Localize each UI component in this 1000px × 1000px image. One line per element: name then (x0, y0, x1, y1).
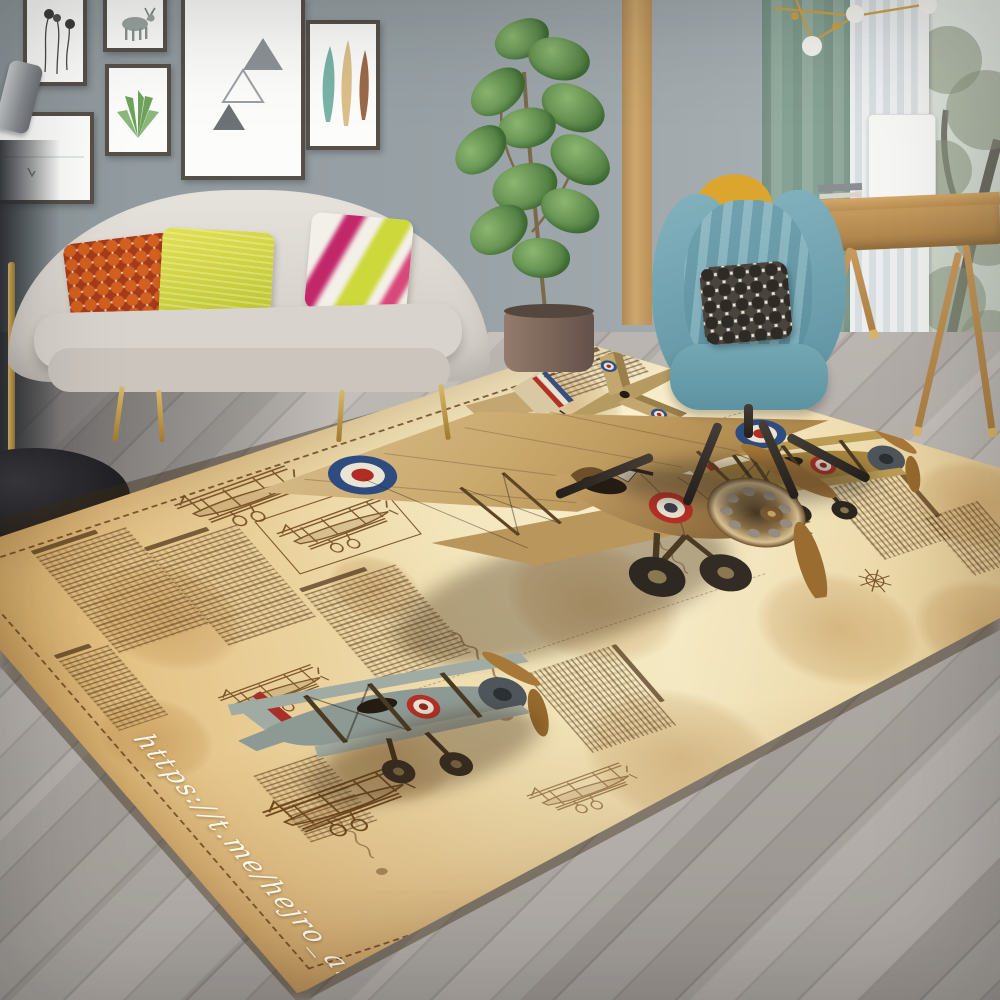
frame-deer (103, 0, 167, 52)
fiddle-leaf-plant (428, 12, 643, 374)
feather-art (310, 24, 376, 146)
sofa-leg (156, 390, 165, 442)
monitor (868, 114, 936, 200)
sofa-base (48, 348, 450, 392)
ikat-pattern (304, 212, 414, 317)
desk-leg (963, 244, 997, 437)
frame-aloe (105, 64, 171, 156)
armchair (646, 172, 860, 492)
sofa-leg (438, 384, 451, 440)
aloe-art (109, 68, 167, 152)
living-room-rug-photo: https://t.me/hejro_art (0, 0, 1000, 1000)
desk-leg (913, 252, 962, 437)
frame-triangles (181, 0, 305, 180)
pillow-ikat (304, 212, 414, 317)
armchair-post (744, 404, 753, 438)
frame-feathers (306, 20, 380, 150)
sofa (8, 190, 490, 448)
pendant-light (735, 0, 1000, 75)
armchair-seat (670, 344, 828, 410)
sofa-leg (336, 390, 345, 442)
armchair-pillow (699, 260, 793, 345)
triangle-art (185, 0, 301, 176)
sofa-leg (112, 386, 125, 442)
plant-pot (504, 310, 594, 372)
deer-art (107, 0, 163, 48)
